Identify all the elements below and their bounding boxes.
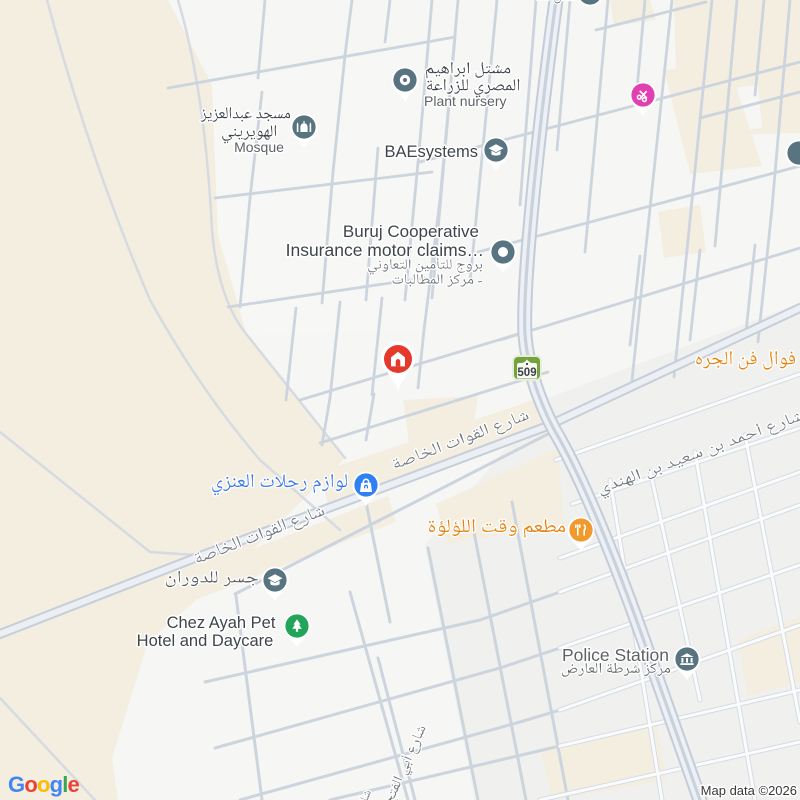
svg-text:Google: Google (8, 772, 80, 797)
svg-text:Insurance motor claims…: Insurance motor claims… (286, 240, 484, 260)
svg-text:BAEsystems: BAEsystems (384, 143, 478, 161)
svg-text:Mosque: Mosque (234, 139, 284, 155)
svg-text:509: 509 (517, 367, 536, 379)
svg-text:Map data ©2026: Map data ©2026 (701, 783, 797, 798)
svg-text:Buruj Cooperative: Buruj Cooperative (343, 222, 479, 241)
svg-text:Plant nursery: Plant nursery (424, 93, 506, 109)
svg-text:Chez Ayah Pet: Chez Ayah Pet (167, 614, 276, 632)
svg-text:Hotel and Daycare: Hotel and Daycare (137, 632, 274, 650)
